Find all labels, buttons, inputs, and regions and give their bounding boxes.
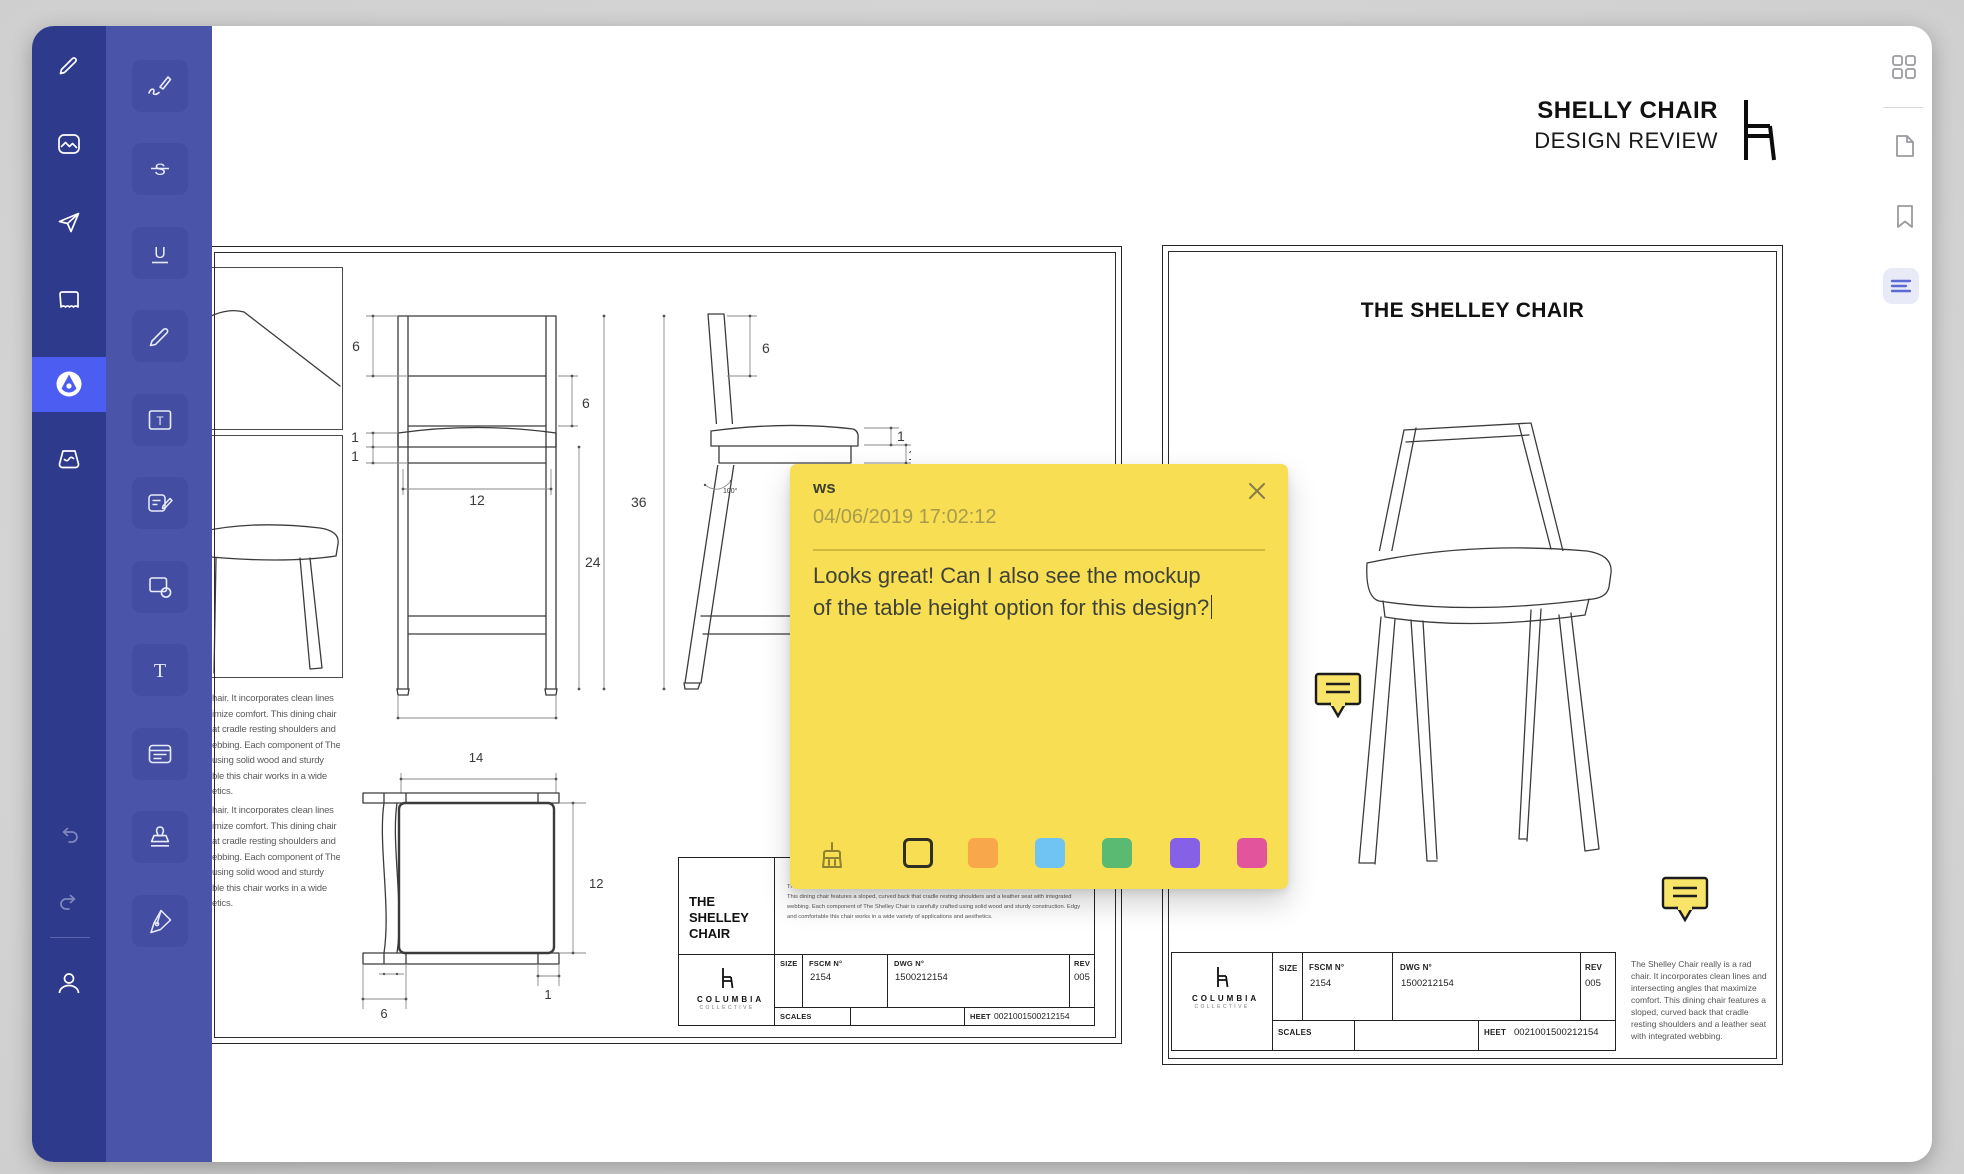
- brand-logo: COLUMBIA COLLECTIVE: [697, 966, 757, 1011]
- sheet-title: THE SHELLEY CHAIR: [1163, 299, 1782, 323]
- stamp-icon: [146, 823, 174, 851]
- sidebar-divider: [50, 937, 90, 938]
- document-title: SHELLY CHAIR: [1412, 96, 1718, 126]
- rail-divider: [1883, 107, 1923, 108]
- color-swatch-blue[interactable]: [1035, 838, 1065, 868]
- rev-label: REV: [1585, 963, 1602, 972]
- bookmark-icon[interactable]: [1890, 202, 1918, 230]
- svg-text:S: S: [154, 160, 165, 179]
- tool-stamp-button[interactable]: [132, 811, 188, 863]
- svg-text:6: 6: [582, 395, 590, 411]
- svg-text:1: 1: [897, 428, 905, 444]
- primary-sidebar: [32, 26, 106, 1162]
- brand-chair-icon: [1214, 965, 1230, 989]
- svg-text:12: 12: [469, 492, 485, 508]
- app-window: hair. It incorporates clean linesimize c…: [32, 26, 1932, 1162]
- sidebar-item-inbox[interactable]: [49, 439, 89, 479]
- shape-capture-icon: [146, 573, 174, 601]
- compass-icon: [52, 367, 86, 401]
- svg-text:T: T: [154, 660, 166, 682]
- clipped-paragraph-2: hair. It incorporates clean linesimize c…: [212, 803, 340, 912]
- svg-text:12: 12: [589, 876, 603, 891]
- color-swatch-orange[interactable]: [968, 838, 998, 868]
- receipt-icon: [56, 288, 82, 314]
- fscm-value: 2154: [810, 972, 831, 983]
- tool-shape-capture-button[interactable]: [132, 561, 188, 613]
- top-view-drawing: 14 12 1 6: [346, 746, 606, 1021]
- size-label: SIZE: [1279, 964, 1298, 973]
- dwg-label: DWG N°: [1400, 963, 1432, 972]
- note-timestamp: 04/06/2019 17:02:12: [813, 506, 997, 529]
- rev-value: 005: [1585, 978, 1601, 989]
- scales-label: SCALES: [780, 1012, 812, 1021]
- text-cursor: [1211, 595, 1212, 619]
- tool-pen-nib-button[interactable]: [132, 895, 188, 947]
- strikethrough-icon: S: [146, 155, 174, 183]
- pencil-icon: [56, 51, 82, 77]
- page-icon[interactable]: [1890, 132, 1918, 160]
- tool-text-button[interactable]: T: [132, 644, 188, 696]
- svg-text:14: 14: [469, 750, 483, 765]
- undo-icon: [56, 825, 82, 851]
- svg-text:1: 1: [351, 448, 359, 464]
- note-author: ws: [813, 478, 836, 498]
- clipped-paragraph-1: hair. It incorporates clean linesimize c…: [212, 691, 340, 800]
- tools-sidebar: S U T T: [106, 26, 212, 1162]
- grid-view-icon[interactable]: [1890, 53, 1918, 81]
- redo-button[interactable]: [49, 885, 89, 925]
- svg-text:T: T: [156, 414, 164, 428]
- text-box-icon: T: [146, 406, 174, 434]
- text-icon: T: [146, 656, 174, 684]
- brand-chair-icon: [719, 966, 735, 990]
- comment-marker-2[interactable]: [1661, 876, 1709, 922]
- front-view-drawing: 6 1 1 6 12 24 36: [346, 309, 666, 729]
- note-divider: [813, 549, 1265, 551]
- perspective-chair-drawing: [1331, 401, 1651, 881]
- tool-card-notes-button[interactable]: [132, 728, 188, 780]
- document-header: SHELLY CHAIR DESIGN REVIEW: [1412, 96, 1718, 156]
- title-block-right: COLUMBIA COLLECTIVE SIZE FSCM N° 2154 DW…: [1171, 952, 1616, 1051]
- product-name: THE SHELLEY CHAIR: [689, 894, 769, 942]
- svg-text:24: 24: [585, 554, 601, 570]
- rev-value: 005: [1074, 972, 1090, 983]
- sidebar-item-comments-active[interactable]: [49, 364, 89, 404]
- dwg-label: DWG N°: [894, 959, 924, 968]
- svg-text:36: 36: [631, 494, 647, 510]
- redo-icon: [56, 892, 82, 918]
- color-swatch-purple[interactable]: [1170, 838, 1200, 868]
- svg-text:1: 1: [351, 429, 359, 445]
- signature-icon: [146, 72, 174, 100]
- tool-note-edit-button[interactable]: [132, 477, 188, 529]
- note-edit-icon: [146, 489, 174, 517]
- clear-brush-icon[interactable]: [817, 841, 847, 871]
- color-swatch-none[interactable]: [903, 838, 933, 868]
- underline-icon: U: [146, 239, 174, 267]
- pen-nib-icon: [146, 907, 174, 935]
- sheet-label: HEET: [970, 1012, 991, 1021]
- dwg-value: 1500212154: [895, 972, 948, 983]
- color-swatch-green[interactable]: [1102, 838, 1132, 868]
- sticky-note: ws 04/06/2019 17:02:12 Looks great! Can …: [790, 464, 1288, 889]
- svg-text:1: 1: [544, 987, 551, 1002]
- sidebar-item-receipts[interactable]: [49, 281, 89, 321]
- note-body-text[interactable]: Looks great! Can I also see the mockup o…: [813, 560, 1258, 623]
- sketch-panel-bottom: [191, 435, 343, 678]
- undo-button[interactable]: [49, 818, 89, 858]
- svg-text:6: 6: [352, 338, 360, 354]
- sketch-panel-top: [191, 267, 343, 430]
- send-icon: [56, 209, 82, 235]
- sketch-back-curve: [192, 268, 342, 429]
- image-icon: [56, 131, 82, 157]
- notes-list-icon[interactable]: [1883, 268, 1919, 304]
- rev-label: REV: [1074, 959, 1090, 968]
- fscm-label: FSCM N°: [1309, 963, 1344, 972]
- dwg-value: 1500212154: [1401, 978, 1454, 989]
- tool-signature-button[interactable]: [132, 60, 188, 112]
- card-lines-icon: [146, 740, 174, 768]
- header-chair-logo-icon: [1732, 96, 1780, 166]
- fscm-label: FSCM N°: [809, 959, 842, 968]
- user-icon: [55, 969, 83, 997]
- close-icon[interactable]: [1246, 480, 1268, 502]
- fscm-value: 2154: [1310, 978, 1331, 989]
- user-profile-button[interactable]: [49, 963, 89, 1003]
- pencil-icon: [146, 322, 174, 350]
- svg-text:U: U: [154, 245, 166, 262]
- sidebar-item-images[interactable]: [49, 124, 89, 164]
- size-label: SIZE: [780, 959, 797, 968]
- tool-underline-button[interactable]: U: [132, 227, 188, 279]
- tool-text-box-button[interactable]: T: [132, 394, 188, 446]
- svg-text:1: 1: [908, 447, 911, 463]
- sidebar-item-draw[interactable]: [49, 44, 89, 84]
- tool-pencil-button[interactable]: [132, 310, 188, 362]
- tool-strikethrough-button[interactable]: S: [132, 143, 188, 195]
- brand-logo: COLUMBIA COLLECTIVE: [1192, 965, 1252, 1010]
- sheet-value: 0021001500212154: [994, 1011, 1070, 1021]
- color-swatch-pink[interactable]: [1237, 838, 1267, 868]
- svg-text:6: 6: [762, 340, 770, 356]
- sheet-description: The Shelley Chair really is a rad chair.…: [1631, 958, 1769, 1042]
- sidebar-item-send[interactable]: [49, 202, 89, 242]
- sheet-value: 0021001500212154: [1514, 1027, 1599, 1038]
- svg-text:6: 6: [380, 1006, 387, 1021]
- inbox-icon: [56, 446, 82, 472]
- sketch-chair-partial: [192, 436, 342, 677]
- svg-text:100°: 100°: [723, 487, 738, 495]
- comment-marker-1[interactable]: [1314, 672, 1362, 718]
- sheet-label: HEET: [1484, 1028, 1506, 1037]
- scales-label: SCALES: [1278, 1028, 1312, 1037]
- document-subtitle: DESIGN REVIEW: [1412, 126, 1718, 156]
